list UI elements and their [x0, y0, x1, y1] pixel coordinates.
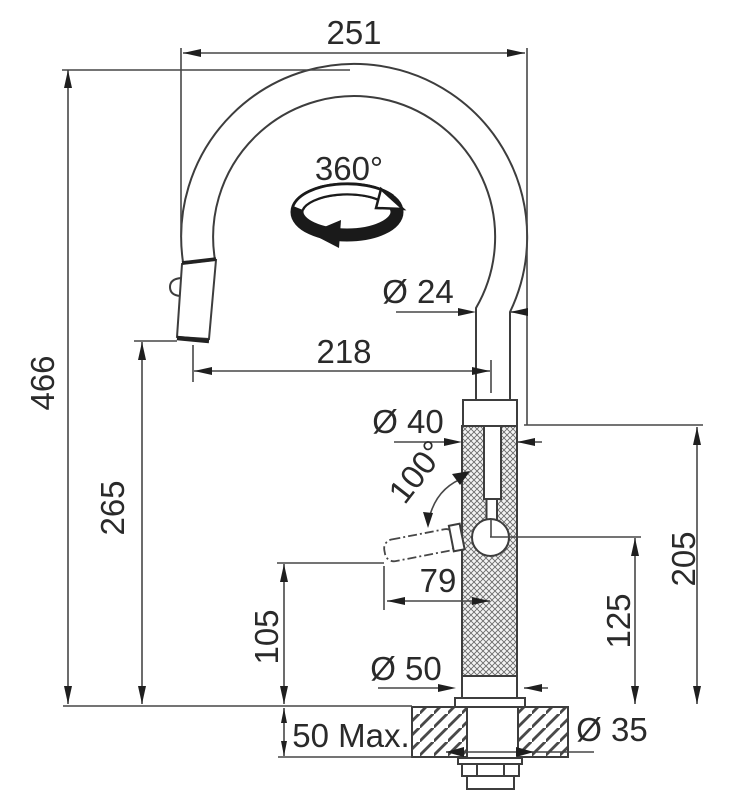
dim-body-diameter-label: Ø 40 — [372, 403, 444, 440]
dim-spout-reach: 218 — [193, 333, 491, 393]
body-collar — [463, 400, 517, 426]
faucet-body — [455, 426, 525, 707]
countertop-section — [412, 707, 568, 758]
dim-height-overall: 466 — [24, 70, 350, 704]
dim-height-overall-label: 466 — [24, 355, 61, 410]
swivel-angle-label: 360° — [315, 150, 383, 187]
mounting-shank — [467, 707, 518, 758]
dim-lever-pivot-height-label: 125 — [600, 593, 637, 648]
dim-body-top-height-label: 205 — [665, 531, 702, 586]
dim-base-diameter: Ø 50 — [370, 650, 548, 692]
dim-spout-tube-diameter-label: Ø 24 — [382, 273, 454, 310]
dim-width-overall-label: 251 — [326, 14, 381, 51]
faucet-technical-drawing-page: 251 466 265 218 Ø 24 Ø 40 — [0, 0, 755, 800]
dim-body-top-height: 205 — [524, 425, 703, 704]
dim-spout-reach-label: 218 — [316, 333, 371, 370]
lever-stem — [487, 499, 498, 520]
dim-lever-angle-label: 100° — [381, 433, 452, 510]
dim-lever-angle: 100° — [381, 433, 470, 528]
spray-head — [170, 259, 216, 341]
base-flange — [455, 698, 525, 707]
dim-outlet-height: 265 — [94, 341, 177, 704]
dim-mounting-hole-label: Ø 35 — [576, 711, 648, 748]
base-cylinder — [462, 676, 517, 698]
dim-outlet-height-label: 265 — [94, 480, 131, 535]
dim-deck-thickness: 50 Max. — [63, 706, 412, 757]
spray-head-aerator — [177, 338, 209, 341]
dim-deck-thickness-label: 50 Max. — [292, 717, 409, 754]
cartridge-slot — [484, 426, 501, 499]
rotation-symbol — [297, 189, 403, 248]
dim-lever-clearance-height: 105 — [248, 563, 384, 704]
handle-lever — [382, 524, 465, 565]
mounting-nut — [458, 758, 522, 789]
dim-lever-clearance-height-label: 105 — [248, 609, 285, 664]
dim-lever-length-label: 79 — [420, 562, 457, 599]
dim-base-diameter-label: Ø 50 — [370, 650, 442, 687]
faucet-technical-drawing: 251 466 265 218 Ø 24 Ø 40 — [0, 0, 755, 800]
